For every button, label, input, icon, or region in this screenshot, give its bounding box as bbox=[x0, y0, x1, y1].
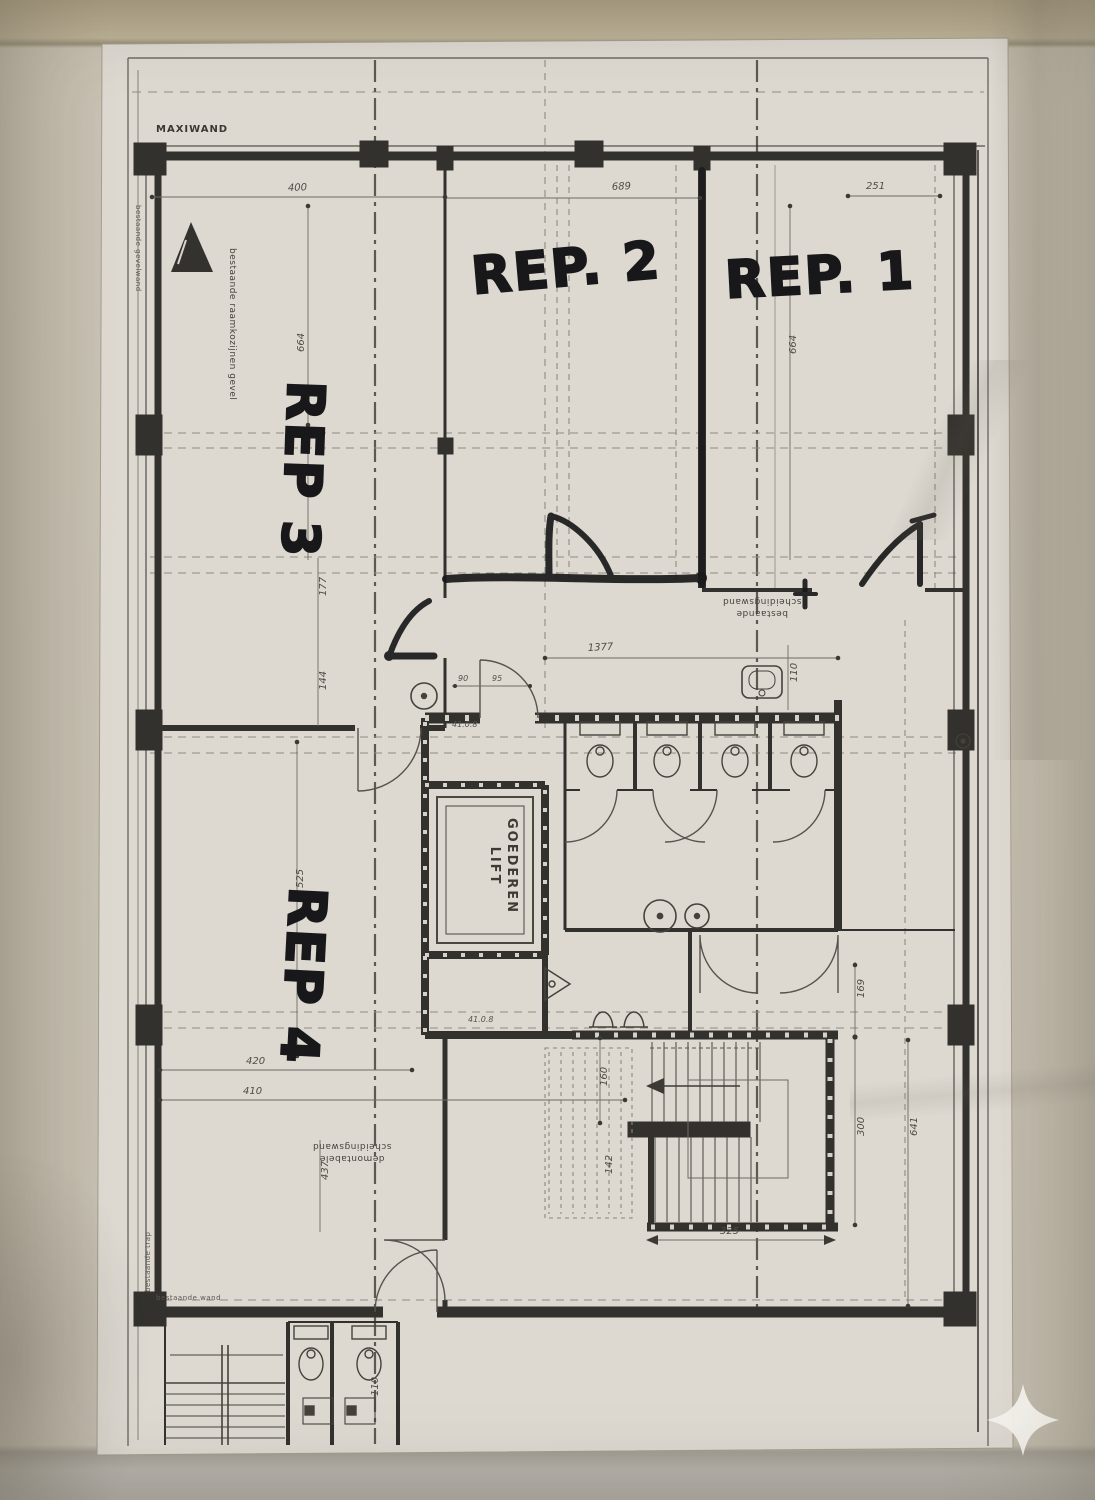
dim-110-top: 110 bbox=[789, 663, 800, 682]
dim-142: 142 bbox=[604, 1155, 615, 1174]
dim-641: 641 bbox=[909, 1117, 920, 1136]
note-bottom: bestaande wand bbox=[156, 1294, 221, 1302]
note-rep4-line1: demontabele bbox=[319, 1153, 384, 1163]
dim-300: 300 bbox=[856, 1117, 867, 1136]
room-code-lower: 41.0.8 bbox=[468, 1015, 493, 1024]
room-label-rep1: REP. 1 bbox=[724, 241, 917, 311]
dim-400: 400 bbox=[288, 182, 307, 194]
room-code-upper: 41.0.8 bbox=[452, 720, 477, 729]
room-label-rep4: REP 4 bbox=[268, 885, 337, 1066]
dim-169: 169 bbox=[856, 979, 867, 998]
floor-plan-photo: 400 689 251 664 664 177 144 1377 110 90 … bbox=[0, 0, 1095, 1500]
dim-95: 95 bbox=[492, 674, 502, 683]
dim-110-bottom: 110 bbox=[370, 1377, 381, 1396]
dim-664-left: 664 bbox=[296, 333, 307, 352]
note-left-window: bestaande raamkozijnen gevel bbox=[227, 248, 237, 400]
dim-664-right: 664 bbox=[788, 335, 799, 354]
note-rep4-line2: scheidingswand bbox=[313, 1141, 392, 1151]
lift-label-line2: LIFT bbox=[487, 847, 502, 886]
note-far-left: bestaande gevelwand bbox=[134, 205, 142, 292]
dim-410: 410 bbox=[243, 1086, 262, 1097]
maxiwand-label: MAXIWAND bbox=[156, 124, 228, 135]
dim-160: 160 bbox=[599, 1067, 610, 1086]
dim-144: 144 bbox=[318, 671, 329, 690]
dim-177: 177 bbox=[318, 576, 329, 596]
note-center-line2: scheidingswand bbox=[723, 596, 802, 606]
dim-1377: 1377 bbox=[588, 642, 615, 654]
dim-251: 251 bbox=[866, 181, 885, 192]
room-label-rep3: REP 3 bbox=[269, 380, 335, 560]
note-bottom-side: bestaande trap bbox=[144, 1231, 152, 1292]
dim-689: 689 bbox=[612, 181, 632, 193]
dim-325: 325 bbox=[720, 1226, 739, 1237]
dim-420: 420 bbox=[246, 1056, 265, 1067]
note-center-line1: bestaande bbox=[736, 608, 788, 618]
dim-525: 525 bbox=[295, 869, 306, 888]
lift-label-line1: GOEDEREN bbox=[504, 818, 519, 914]
dim-90: 90 bbox=[458, 674, 468, 683]
floor-plan-scan: 400 689 251 664 664 177 144 1377 110 90 … bbox=[0, 0, 1095, 1500]
